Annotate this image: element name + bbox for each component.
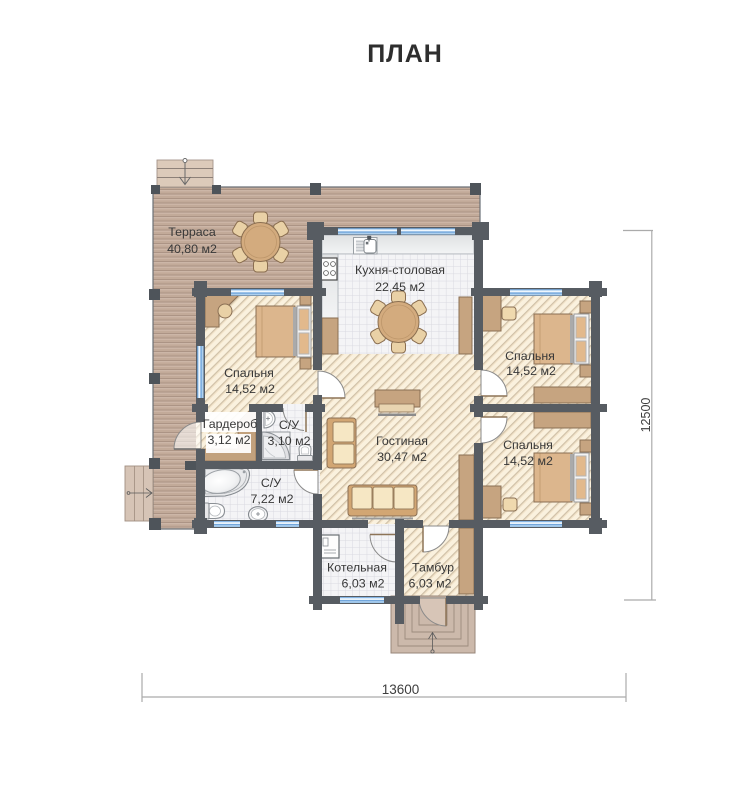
svg-text:30,47 м2: 30,47 м2 [377, 450, 427, 464]
svg-text:14,52 м2: 14,52 м2 [503, 454, 553, 468]
svg-text:7,22 м2: 7,22 м2 [251, 492, 294, 506]
svg-text:Спальня: Спальня [505, 349, 555, 363]
svg-text:Гардероб: Гардероб [203, 417, 258, 431]
svg-text:40,80 м2: 40,80 м2 [167, 242, 217, 256]
svg-text:Спальня: Спальня [503, 438, 553, 452]
svg-text:Спальня: Спальня [224, 366, 274, 380]
svg-text:С/У: С/У [261, 476, 281, 490]
svg-text:Котельная: Котельная [327, 561, 387, 575]
svg-text:14,52 м2: 14,52 м2 [506, 364, 556, 378]
svg-text:13600: 13600 [382, 682, 420, 697]
svg-text:12500: 12500 [639, 398, 653, 433]
svg-text:3,10 м2: 3,10 м2 [268, 434, 311, 448]
svg-text:С/У: С/У [279, 418, 299, 432]
svg-text:22,45 м2: 22,45 м2 [375, 280, 425, 294]
svg-text:Тамбур: Тамбур [412, 561, 454, 575]
svg-text:6,03 м2: 6,03 м2 [342, 577, 385, 591]
svg-text:Гостиная: Гостиная [376, 434, 428, 448]
svg-text:6,03 м2: 6,03 м2 [409, 577, 452, 591]
svg-text:3,12 м2: 3,12 м2 [208, 433, 251, 447]
svg-text:Кухня-столовая: Кухня-столовая [355, 263, 445, 277]
svg-text:14,52 м2: 14,52 м2 [225, 382, 275, 396]
svg-text:ПЛАН: ПЛАН [367, 40, 443, 68]
svg-text:Терраса: Терраса [168, 225, 216, 239]
